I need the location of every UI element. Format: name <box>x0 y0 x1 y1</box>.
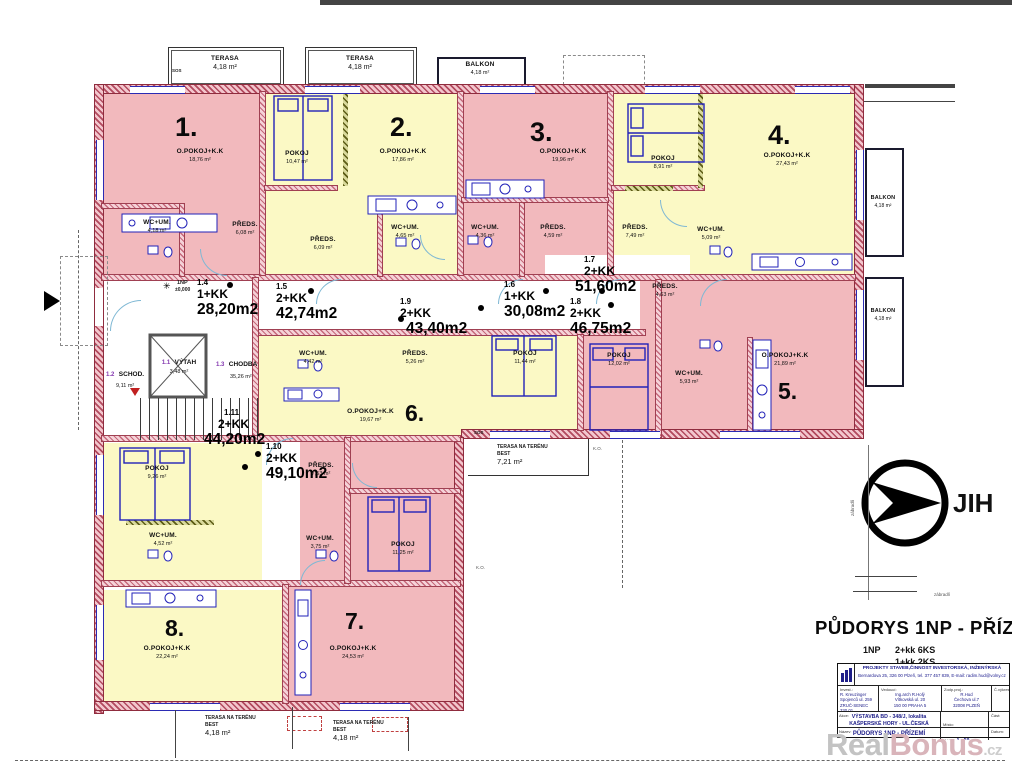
investor-line3: ZRUČ-SENEC 330 01 <box>840 703 876 711</box>
apt-6-room-area: 19,67 m² <box>328 417 413 423</box>
apt3-wc-name: WC+UM. <box>462 224 508 231</box>
summary-line-1: 2+kk 6KS <box>895 645 935 655</box>
apt-4-room-name: O.POKOJ+K.K <box>742 152 832 159</box>
apt-3-room-label: O.POKOJ+K.K19,96 m² <box>518 148 608 163</box>
schod-area: 9,11 m² <box>116 383 144 390</box>
apt-1-room-name: O.POKOJ+K.K <box>155 148 245 155</box>
unit-1-10-type: 2+KK <box>266 452 327 465</box>
title-block-people-row: Invest.: R. Kreuzinger Spojenců ul. 259 … <box>838 685 1009 711</box>
page-title: PŮDORYS 1NP - PŘÍZEMÍ <box>815 617 1012 639</box>
apt2-preds-name: PŘEDS. <box>298 236 348 243</box>
summary-floor: 1NP <box>863 645 881 655</box>
chodba-id: 1.3 <box>216 362 224 368</box>
u111-wc-area: 4,52 m² <box>138 541 188 547</box>
entrance-arrow-icon <box>44 291 60 311</box>
unit-1-6-type: 1+KK <box>504 290 565 303</box>
unit-1-5-label: 1.52+KK42,74m2 <box>276 283 337 322</box>
designer-line3: 32008 PLZEŇ <box>944 703 989 708</box>
apt-5-room-area: 21,89 m² <box>740 361 830 367</box>
apt1-wc-name: WC+UM. <box>132 219 182 226</box>
terrace-mid-label: TERASA NA TERÉNU BEST 7,21 m² <box>497 444 548 467</box>
unit-1-11-label: 1.112+KK44,20m2 <box>204 409 265 448</box>
kitchen-apt4 <box>752 254 852 270</box>
u18-preds-name: PŘEDS. <box>642 283 688 290</box>
vytah-label: 1.1 VÝTAH 3,48 m² <box>160 350 198 376</box>
u19-pokoj-name: POKOJ <box>500 350 550 357</box>
u19-pokoj-label: POKOJ11,44 m² <box>500 350 550 365</box>
u18-preds-label: PŘEDS.4,63 m² <box>642 283 688 298</box>
vytah-area: 3,48 m² <box>160 369 198 376</box>
apt-7-number: 7. <box>345 608 364 635</box>
schod-id: 1.2 <box>106 372 114 378</box>
apt-7-room-name: O.POKOJ+K.K <box>308 645 398 652</box>
schod-name: SCHOD. <box>119 371 144 378</box>
apt-5-room-label: O.POKOJ+K.K21,89 m² <box>740 352 830 367</box>
u110-wc-area: 3,75 m² <box>295 544 345 550</box>
apt3-preds-name: PŘEDS. <box>530 224 576 231</box>
u19-preds-name: PŘEDS. <box>392 350 438 357</box>
terrace-bot-1-l1: TERASA NA TERÉNU <box>205 715 256 722</box>
apt3-wc-label: WC+UM.4,36 m² <box>462 224 508 239</box>
ref-line-b1 <box>175 710 176 758</box>
building-icon <box>841 668 852 682</box>
u18-preds-area: 4,63 m² <box>642 292 688 298</box>
unit-1-8-label: 1.82+KK46,75m2 <box>570 298 631 337</box>
kitchen-apt6 <box>284 388 339 401</box>
door-dot-8 <box>242 464 248 470</box>
apt-8-room-label: O.POKOJ+K.K22,24 m² <box>122 645 212 660</box>
chodba-area: 35,26 m² <box>230 374 257 381</box>
investor-line2: Spojenců ul. 259 <box>840 697 876 702</box>
u18-pokoj-label: POKOJ12,02 m² <box>594 352 644 367</box>
schod-label: 1.2 SCHOD. 9,11 m² <box>106 362 144 390</box>
apt4-wc-label: WC+UM.5,09 m² <box>688 226 734 241</box>
unit-1-9-label: 1.92+KK43,40m2 <box>400 298 467 337</box>
apt4-wc-area: 5,09 m² <box>688 235 734 241</box>
balcony-right-1-label: BALKON4,18 m² <box>867 195 899 209</box>
project-label: Akce: <box>839 713 849 718</box>
apt-2-number: 2. <box>390 112 413 143</box>
balcony-right-2-name: BALKON <box>867 308 899 314</box>
apt5-wc-label: WC+UM.5,93 m² <box>664 370 714 385</box>
kitchen-apt3 <box>466 180 544 198</box>
kitchen-apt8 <box>126 590 216 607</box>
u18-pokoj-area: 12,02 m² <box>594 361 644 367</box>
u110-pokoj-area: 11,25 m² <box>378 550 428 556</box>
unit-1-8-area: 46,75m2 <box>570 320 631 337</box>
apt-8-number: 8. <box>165 615 184 642</box>
ref-line-r1 <box>855 576 917 577</box>
apt5-wc-area: 5,93 m² <box>664 379 714 385</box>
u19-pokoj-area: 11,44 m² <box>500 359 550 365</box>
apt2-pokoj-area: 10,47 m² <box>272 159 322 165</box>
apt-7-room-area: 24,53 m² <box>308 654 398 660</box>
title-block-project-row: Akce: VÝSTAVBA BD - 348/J, lokalita KAŠP… <box>838 711 1009 727</box>
terrace-mid-l1: TERASA NA TERÉNU <box>497 444 548 451</box>
company-logo-icon <box>838 664 855 685</box>
floor-plan-page: 1. 2. 3. 4. 5. 6. 7. 8. O.POKOJ+K.K18,76… <box>0 0 1012 768</box>
apt1-preds-area: 6,08 m² <box>222 230 268 236</box>
apt-4-number: 4. <box>768 120 791 151</box>
u110-pokoj-label: POKOJ11,25 m² <box>378 541 428 556</box>
unit-1-6-area: 30,08m2 <box>504 303 565 320</box>
apt-1-room-label: O.POKOJ+K.K18,76 m² <box>155 148 245 163</box>
unit-1-7-area: 51,60m2 <box>575 278 636 295</box>
u19-wc-label: WC+UM.4,42 m² <box>288 350 338 365</box>
mark-zabradli-1: zábradlí <box>850 500 855 516</box>
part-label: Část: <box>991 713 1007 718</box>
apt-7-room-label: O.POKOJ+K.K24,53 m² <box>308 645 398 660</box>
balcony-top-label: BALKON4,18 m² <box>450 61 510 76</box>
project-line1: VÝSTAVBA BD - 348/J, lokalita <box>840 714 938 721</box>
ref-line-r2 <box>853 591 917 592</box>
door-dot-4 <box>478 305 484 311</box>
unit-1-4-type: 1+KK <box>197 288 258 301</box>
u111-wc-name: WC+UM. <box>138 532 188 539</box>
company-address: Bernardova 25, 326 00 Plzeň, tel. 377 45… <box>857 673 1007 678</box>
terrace-bot-1-label: TERASA NA TERÉNU BEST 4,18 m² <box>205 715 256 738</box>
apt-3-room-area: 19,96 m² <box>518 157 608 163</box>
unit-1-4-area: 28,20m2 <box>197 301 258 318</box>
apt4-preds-name: PŘEDS. <box>612 224 658 231</box>
apt2-pokoj-label: POKOJ10,47 m² <box>272 150 322 165</box>
bed-apt7 <box>368 497 430 571</box>
apt3-preds-area: 4,59 m² <box>530 233 576 239</box>
u19-preds-label: PŘEDS.5,26 m² <box>392 350 438 365</box>
apt2-pokoj-name: POKOJ <box>272 150 322 157</box>
u111-wc-label: WC+UM.4,52 m² <box>138 532 188 547</box>
apt4-pokoj-label: POKOJ8,91 m² <box>638 155 688 170</box>
apt2-wc-label: WC+UM.4,65 m² <box>382 224 428 239</box>
apt1-wc-area: 4,18 m² <box>132 228 182 234</box>
apt1-wc-label: WC+UM.4,18 m² <box>132 219 182 234</box>
unit-1-7-label: 1.72+KK51,60m2 <box>584 256 636 295</box>
vytah-name: VÝTAH <box>175 359 197 366</box>
ref-line-b2 <box>292 707 293 749</box>
apt4-wc-name: WC+UM. <box>688 226 734 233</box>
apt3-wc-area: 4,36 m² <box>462 233 508 239</box>
apt4-pokoj-name: POKOJ <box>638 155 688 162</box>
vytah-id: 1.1 <box>162 360 170 366</box>
apt-4-room-label: O.POKOJ+K.K27,43 m² <box>742 152 832 167</box>
entrance-canopy <box>60 256 108 346</box>
apt5-wc-name: WC+UM. <box>664 370 714 377</box>
u110-wc-label: WC+UM.3,75 m² <box>295 535 345 550</box>
compass-south-label: JIH <box>953 488 993 519</box>
level-mark-floor: 1NP <box>177 280 188 286</box>
kitchen-apt7 <box>295 590 311 695</box>
unit-1-7-type: 2+KK <box>584 265 636 278</box>
terrace-bot-2-l1: TERASA NA TERÉNU <box>333 720 384 727</box>
unit-1-11-area: 44,20m2 <box>204 431 265 448</box>
mark-ko-1: K.O. <box>593 446 602 451</box>
u19-preds-area: 5,26 m² <box>392 359 438 365</box>
apt-5-number: 5. <box>778 378 797 405</box>
apt-4-room-area: 27,43 m² <box>742 161 832 167</box>
terrace-bot-2-label: TERASA NA TERÉNU BEST 4,18 m² <box>333 720 384 743</box>
unit-1-5-area: 42,74m2 <box>276 305 337 322</box>
apt2-wc-name: WC+UM. <box>382 224 428 231</box>
balcony-top-name: BALKON <box>450 61 510 68</box>
apt-2-room-name: O.POKOJ+K.K <box>358 148 448 155</box>
ref-line-b3 <box>408 717 409 751</box>
realbonus-watermark: RealBonus.cz <box>826 727 1002 763</box>
terrace-top-2-area: 4,18 m² <box>315 64 405 71</box>
unit-1-5-type: 2+KK <box>276 292 337 305</box>
apt2-preds-area: 6,09 m² <box>298 245 348 251</box>
balcony-right-1-area: 4,18 m² <box>867 203 899 209</box>
terrace-top-2-label: TERASA4,18 m² <box>315 55 405 71</box>
apt-8-room-area: 22,24 m² <box>122 654 212 660</box>
watermark-real: Real <box>826 727 889 763</box>
u111-pokoj-area: 9,26 m² <box>132 474 182 480</box>
terrace-top-2-name: TERASA <box>315 55 405 62</box>
u110-wc-name: WC+UM. <box>295 535 345 542</box>
terrace-bot-2-area: 4,18 m² <box>333 733 384 743</box>
bed-apt6 <box>492 336 556 396</box>
mark-sos-1: SOS <box>172 68 182 73</box>
u18-pokoj-name: POKOJ <box>594 352 644 359</box>
unit-1-10-label: 1.102+KK49,10m2 <box>266 443 327 482</box>
compass-icon <box>865 463 945 543</box>
apt3-preds-label: PŘEDS.4,59 m² <box>530 224 576 239</box>
dim-line-left <box>78 230 79 430</box>
investor-cell: Invest.: R. Kreuzinger Spojenců ul. 259 … <box>838 686 878 711</box>
apt-1-room-area: 18,76 m² <box>155 157 245 163</box>
apt4-pokoj-area: 8,91 m² <box>638 164 688 170</box>
apt2-preds-label: PŘEDS.6,09 m² <box>298 236 348 251</box>
bed-apt4 <box>628 104 704 162</box>
level-mark-elevation: ±0,000 <box>175 287 190 293</box>
company-name: PROJEKTY STAVEB,ČINNOST INVESTORSKÁ, INŽ… <box>857 666 1007 671</box>
terrace-top-1-name: TERASA <box>180 55 270 62</box>
u19-wc-name: WC+UM. <box>288 350 338 357</box>
apt-3-room-name: O.POKOJ+K.K <box>518 148 608 155</box>
mark-sos-2: SOS <box>474 430 484 435</box>
apt-6-room-name: O.POKOJ+K.K <box>328 408 413 415</box>
dim-line-terrace <box>622 440 623 588</box>
apt-1-number: 1. <box>175 112 198 143</box>
door-dot-9 <box>255 451 261 457</box>
lead-line3: 150 00 PRAHA 5 <box>881 703 939 708</box>
unit-1-9-area: 43,40m2 <box>406 320 467 337</box>
watermark-bonus: Bonus <box>889 727 983 763</box>
designer-cell: Zodp.proj.: R.Hud Čechova ul.7 32008 PLZ… <box>941 686 991 711</box>
balcony-right-1-name: BALKON <box>867 195 899 201</box>
apt-6-room-label: O.POKOJ+K.K19,67 m² <box>328 408 413 423</box>
balcony-right-2-area: 4,18 m² <box>867 316 899 322</box>
company-info: PROJEKTY STAVEB,ČINNOST INVESTORSKÁ, INŽ… <box>855 664 1009 685</box>
terrace-bot-1-area: 4,18 m² <box>205 728 256 738</box>
apt-3-number: 3. <box>530 117 553 148</box>
u19-wc-area: 4,42 m² <box>288 359 338 365</box>
title-block-header: PROJEKTY STAVEB,ČINNOST INVESTORSKÁ, INŽ… <box>838 664 1009 685</box>
kitchen-apt2 <box>368 196 456 214</box>
terrace-top-1-label: TERASA4,18 m² <box>180 55 270 71</box>
apt-2-room-area: 17,86 m² <box>358 157 448 163</box>
lead-cell: Vedoucí: Ing.arch R.Holý Vítkovská ul. 2… <box>878 686 941 711</box>
bed-apt2 <box>274 96 332 180</box>
part-cell: Část: <box>988 712 1009 727</box>
u111-pokoj-label: POKOJ9,26 m² <box>132 465 182 480</box>
balcony-right-2-label: BALKON4,18 m² <box>867 308 899 322</box>
apt-8-room-name: O.POKOJ+K.K <box>122 645 212 652</box>
terrace-mid-area: 7,21 m² <box>497 457 548 467</box>
apt-5-room-name: O.POKOJ+K.K <box>740 352 830 359</box>
unit-1-4-label: 1.41+KK28,20m2 <box>197 279 258 318</box>
apt4-preds-area: 7,49 m² <box>612 233 658 239</box>
apt2-wc-area: 4,65 m² <box>382 233 428 239</box>
chodba-label: 1.3 CHODBA 35,26 m² <box>216 352 257 381</box>
apt-2-room-label: O.POKOJ+K.K17,86 m² <box>358 148 448 163</box>
unit-1-9-type: 2+KK <box>400 307 467 320</box>
balcony-top-area: 4,18 m² <box>450 70 510 76</box>
drawing-number-cell: Č.výkresu: <box>991 686 1009 711</box>
unit-1-8-type: 2+KK <box>570 307 631 320</box>
unit-1-6-label: 1.61+KK30,08m2 <box>504 281 565 320</box>
u110-pokoj-name: POKOJ <box>378 541 428 548</box>
watermark-cz: .cz <box>983 742 1002 759</box>
mark-ko-2: K.O. <box>476 565 485 570</box>
drawing-number-label: Č.výkresu: <box>994 687 1007 692</box>
bed-apt8 <box>120 448 190 520</box>
chodba-name: CHODBA <box>229 361 258 368</box>
terrace-top-1-area: 4,18 m² <box>180 64 270 71</box>
level-mark-star-icon: ✳ <box>163 281 171 292</box>
unit-1-10-area: 49,10m2 <box>266 465 327 482</box>
apt1-preds-name: PŘEDS. <box>222 221 268 228</box>
apt1-preds-label: PŘEDS.6,08 m² <box>222 221 268 236</box>
u111-pokoj-name: POKOJ <box>132 465 182 472</box>
location-cell: Místo: KAŠPER. HORY p.č. 150/1 k.ú. <box>940 712 988 727</box>
unit-1-11-type: 2+KK <box>218 418 265 431</box>
mark-zabradli-2: zábradlí <box>934 592 950 597</box>
apt4-preds-label: PŘEDS.7,49 m² <box>612 224 658 239</box>
project-cell: Akce: VÝSTAVBA BD - 348/J, lokalita KAŠP… <box>838 712 940 727</box>
